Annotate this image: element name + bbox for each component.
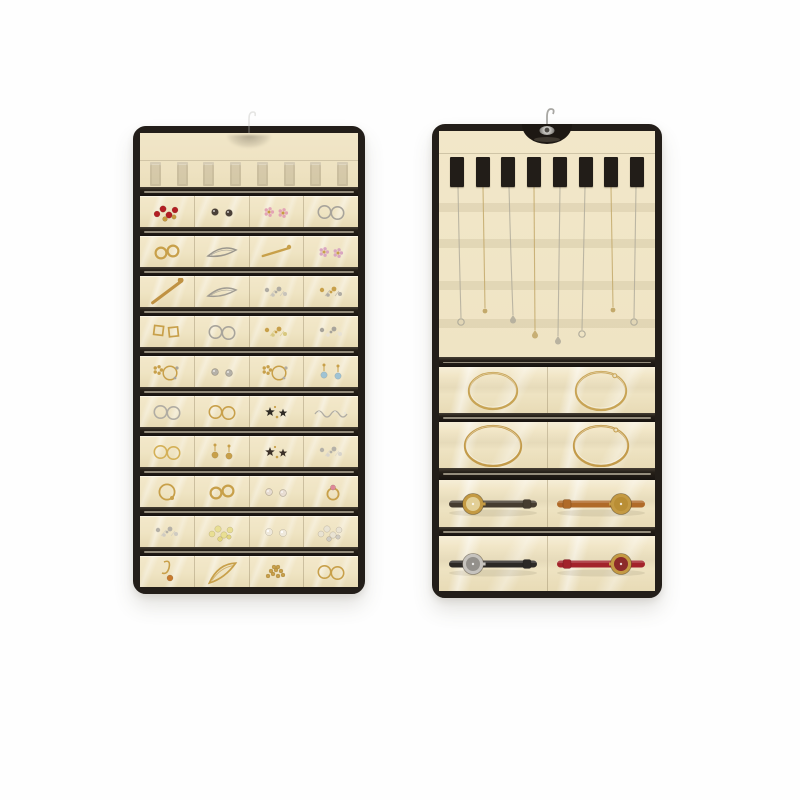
blue-stone-drop-earrings-pocket: [304, 356, 358, 387]
front-pocket-grid: [140, 187, 358, 587]
pocket-row: [140, 396, 358, 427]
gold-butterfly-cluster-pocket: [304, 276, 358, 307]
gold-ring-with-charms-pocket: [250, 356, 305, 387]
pocket-row: [140, 556, 358, 587]
necklace-strap: [579, 157, 593, 187]
notch-highlight: [534, 137, 560, 142]
necklace-strap-row: [450, 157, 644, 187]
metal-grommet: [540, 126, 555, 135]
ghost-strap: [230, 162, 241, 186]
necklace-strap: [604, 157, 618, 187]
organizer-back-panel: [432, 124, 662, 598]
gold-drop-earrings-pocket: [195, 436, 250, 467]
pink-flower-stud-pocket: [250, 196, 305, 227]
product-photo-scene: [0, 0, 800, 800]
gold-bangle-thin-pocket: [439, 367, 548, 413]
divider-strip: [439, 413, 655, 422]
white-pink-studs-pocket: [250, 476, 305, 507]
gold-clasp-hoops-pocket: [195, 396, 250, 427]
large-pocket-row: [439, 422, 655, 468]
gold-double-hoop-pocket: [304, 556, 358, 587]
divider-strip: [140, 307, 358, 316]
hanging-hook-icon: [239, 107, 259, 133]
silver-spectacle-studs-pocket: [250, 276, 305, 307]
gold-stud-cluster-pocket: [250, 316, 305, 347]
silver-marquise-brooch-pocket: [195, 276, 250, 307]
gold-hoops-amber-pocket: [140, 436, 195, 467]
necklace-strap: [630, 157, 644, 187]
necklace-strap: [476, 157, 490, 187]
silver-flower-cluster-pocket: [140, 516, 195, 547]
front-top-band: [140, 133, 358, 187]
gold-chain-heap-pocket: [250, 556, 305, 587]
red-bead-gold-earrings-pocket: [140, 196, 195, 227]
necklace-strap: [501, 157, 515, 187]
gold-bar-pin-pocket: [250, 236, 305, 267]
pearl-stud-earrings-pocket: [250, 516, 305, 547]
divider-strip: [140, 547, 358, 556]
red-strap-gold-face-watch-pocket: [548, 536, 656, 591]
divider-strip: [140, 387, 358, 396]
black-flower-studs-pocket: [250, 396, 305, 427]
divider-strip: [140, 507, 358, 516]
pocket-row: [140, 436, 358, 467]
silver-pearl-star-studs-pocket: [304, 316, 358, 347]
large-pocket-row: [439, 367, 655, 413]
pink-stone-ring-pocket: [304, 476, 358, 507]
dark-star-charm-pocket: [250, 436, 305, 467]
gold-bangle-clasp-pocket: [548, 367, 656, 413]
necklace-strap: [527, 157, 541, 187]
organizer-front-panel: [133, 126, 365, 594]
divider-strip: [140, 267, 358, 276]
pocket-row: [140, 196, 358, 227]
divider-strip: [140, 227, 358, 236]
pocket-row: [140, 476, 358, 507]
tan-strap-gold-face-watch-pocket: [548, 480, 656, 527]
large-pocket-row: [439, 480, 655, 527]
grommet-ghost: [227, 135, 271, 148]
divider-strip: [140, 467, 358, 476]
silver-interlocked-hoops-pocket: [304, 196, 358, 227]
gold-stick-pin-pocket: [140, 276, 195, 307]
pink-gold-flower-studs-pocket: [304, 236, 358, 267]
pearl-crystal-cluster-pocket: [304, 516, 358, 547]
gold-flower-wreath-cluster-pocket: [140, 356, 195, 387]
ghost-strap: [257, 162, 268, 186]
necklace-strap: [450, 157, 464, 187]
necklace-hanging-zone: [439, 131, 655, 357]
silver-cluster-studs-pocket: [304, 436, 358, 467]
silver-dragonfly-brooch-pocket: [195, 236, 250, 267]
back-pocket-grid: [439, 357, 655, 591]
pocket-row: [140, 316, 358, 347]
gold-bangle-clasp-large-pocket: [548, 422, 656, 468]
gold-bangle-large-pocket: [439, 422, 548, 468]
large-pocket-row: [439, 536, 655, 591]
ghost-strap: [150, 162, 161, 186]
divider-strip: [140, 347, 358, 356]
pocket-row: [140, 516, 358, 547]
divider-strip: [439, 468, 655, 480]
divider-strip: [439, 527, 655, 536]
ghost-strap: [177, 162, 188, 186]
small-silver-studs-pocket: [195, 356, 250, 387]
ghost-strap: [337, 162, 348, 186]
gold-textured-leaf-brooch-pocket: [195, 556, 250, 587]
gold-amber-drop-earring-pocket: [140, 556, 195, 587]
yellow-bead-cluster-pocket: [195, 516, 250, 547]
divider-strip: [140, 427, 358, 436]
stitch-seam: [140, 160, 358, 161]
black-stud-earrings-pocket: [195, 196, 250, 227]
necklace-strap: [553, 157, 567, 187]
divider-strip: [439, 357, 655, 367]
gold-hoop-earring-pocket: [140, 476, 195, 507]
ghost-strap: [284, 162, 295, 186]
black-strap-silver-face-watch-pocket: [439, 536, 548, 591]
silver-double-hoops-pocket: [195, 316, 250, 347]
dark-strap-gold-face-watch-pocket: [439, 480, 548, 527]
pocket-row: [140, 276, 358, 307]
silver-chain-bracelet-pocket: [304, 396, 358, 427]
gold-rings-pocket: [195, 476, 250, 507]
pocket-row: [140, 356, 358, 387]
ghost-straps-row: [150, 162, 348, 186]
ghost-strap: [203, 162, 214, 186]
silver-hoop-pair-pocket: [140, 396, 195, 427]
ghost-strap: [310, 162, 321, 186]
pocket-row: [140, 236, 358, 267]
divider-strip: [140, 187, 358, 196]
gold-square-buckle-earrings-pocket: [140, 316, 195, 347]
gold-ring-pair-pocket: [140, 236, 195, 267]
